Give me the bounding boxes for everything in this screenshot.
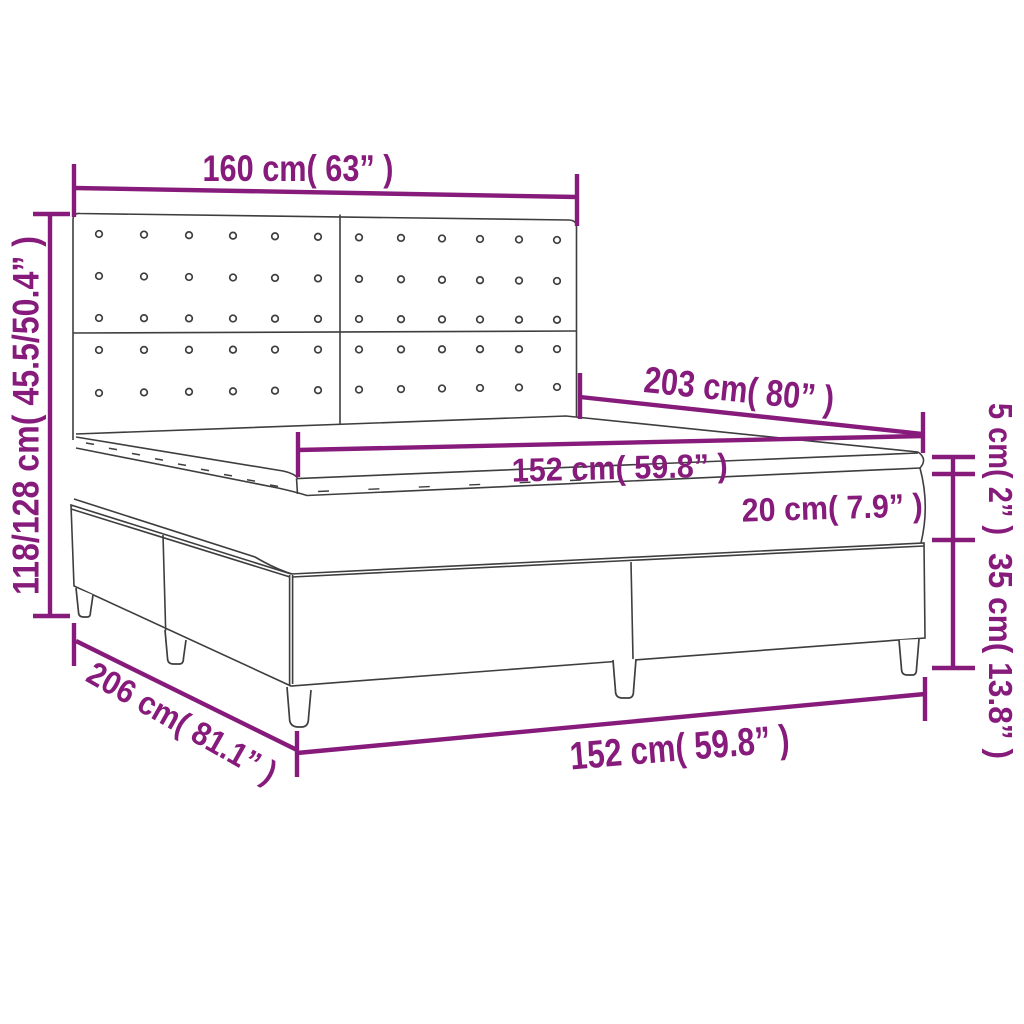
svg-text:118/128 cm( 45.5/50.4” ): 118/128 cm( 45.5/50.4” )	[6, 236, 47, 595]
svg-text:20 cm( 7.9” ): 20 cm( 7.9” )	[741, 486, 923, 528]
svg-text:152 cm( 59.8” ): 152 cm( 59.8” )	[511, 446, 728, 488]
svg-text:35 cm( 13.8” ): 35 cm( 13.8” )	[982, 553, 1019, 759]
svg-text:160 cm( 63” ): 160 cm( 63” )	[203, 148, 394, 189]
svg-text:5 cm( 2” ): 5 cm( 2” )	[982, 403, 1019, 535]
